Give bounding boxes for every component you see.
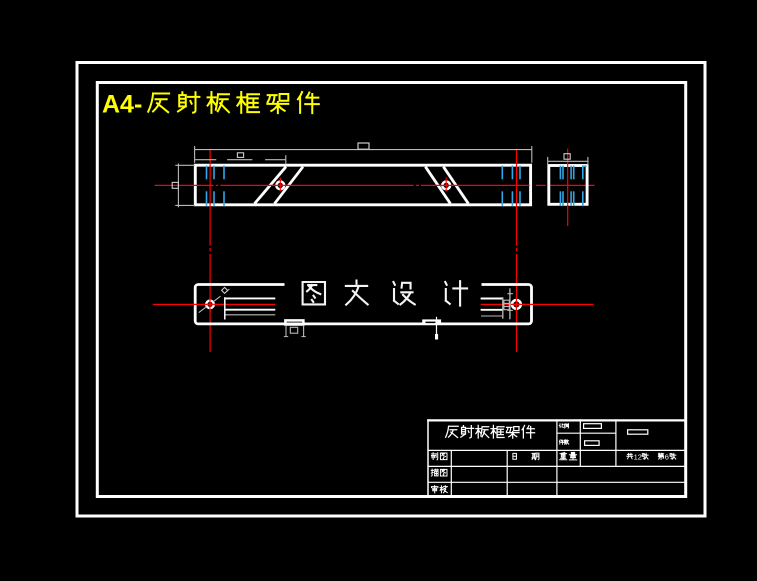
svg-text:A4-: A4-: [102, 90, 142, 118]
svg-text:6: 6: [665, 453, 669, 462]
svg-text:12: 12: [634, 453, 642, 462]
